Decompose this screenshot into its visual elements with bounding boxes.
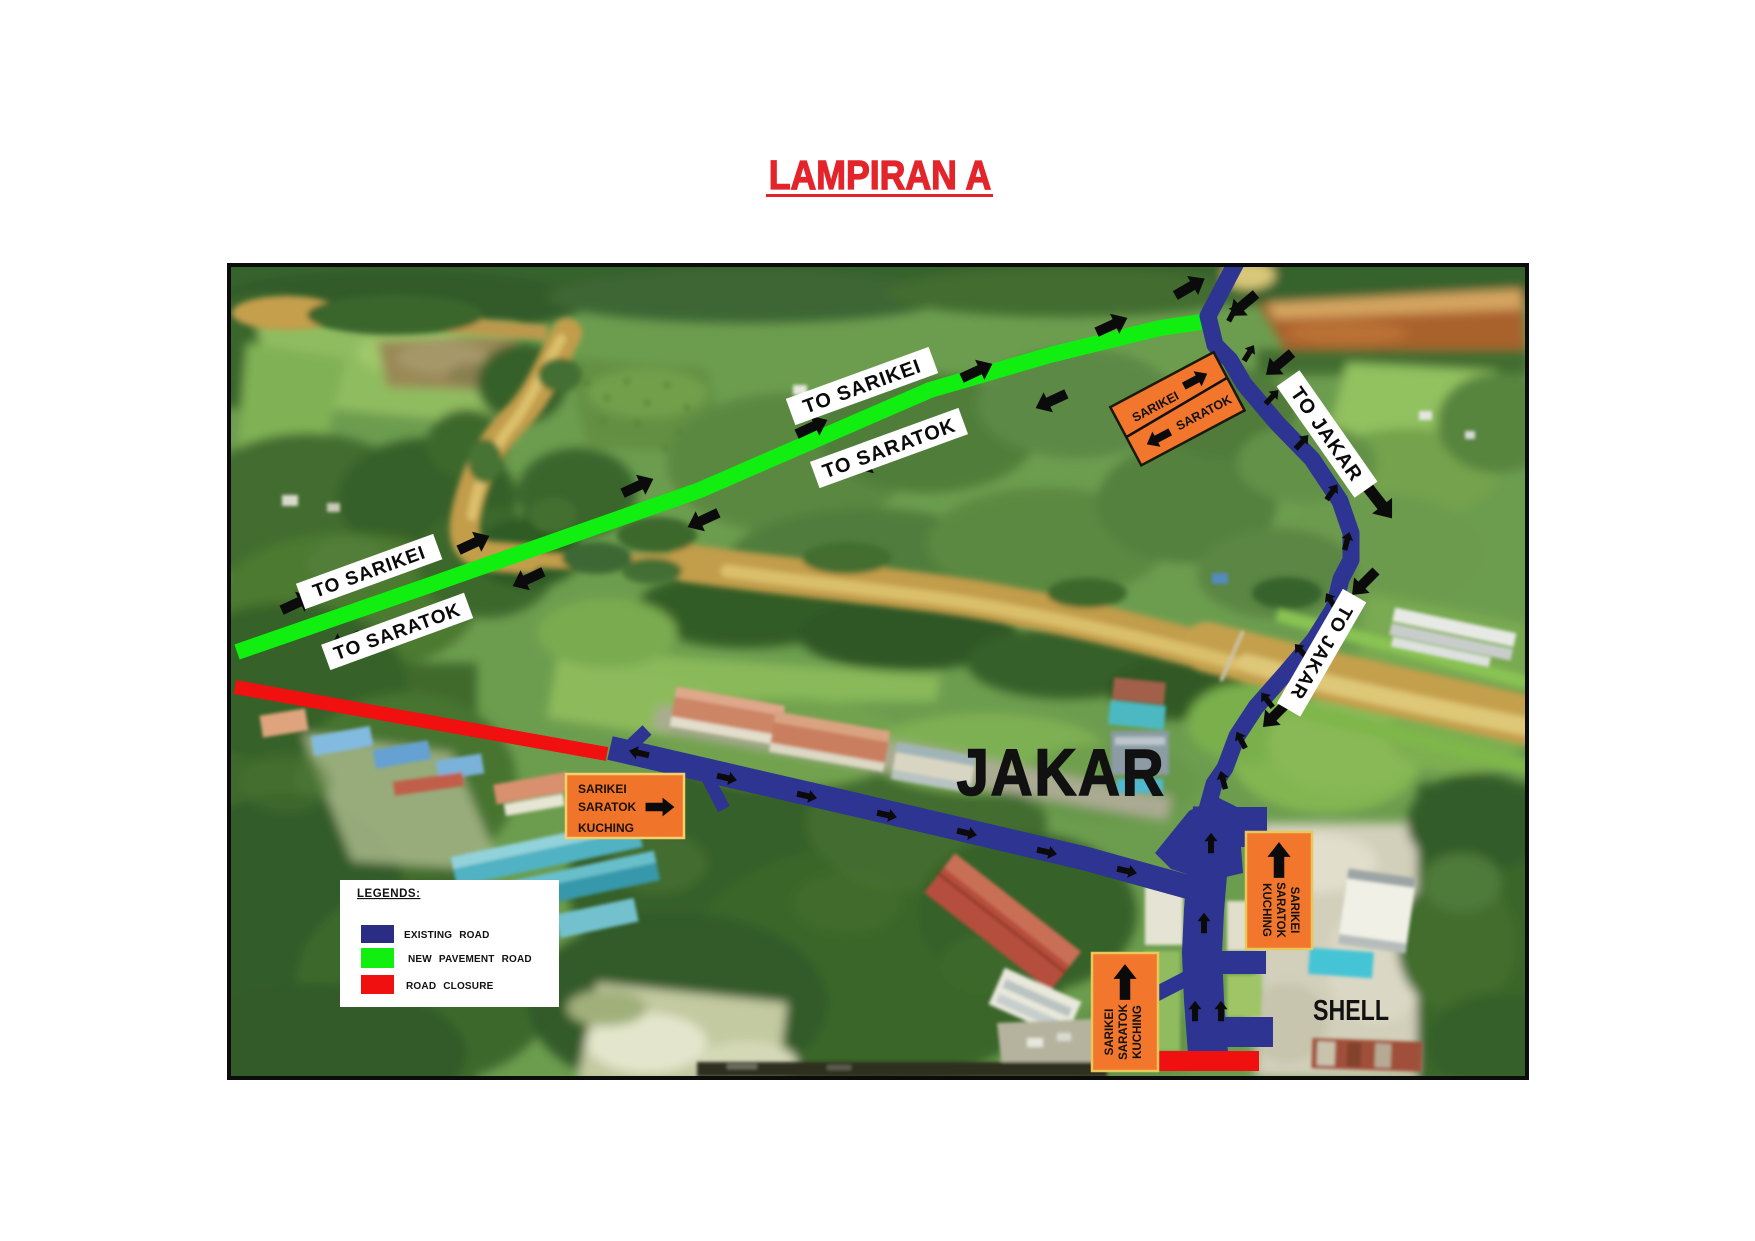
svg-text:SARIKEI: SARIKEI	[578, 782, 627, 796]
svg-text:KUCHING: KUCHING	[1260, 883, 1272, 937]
svg-text:SARIKEI: SARIKEI	[1104, 1009, 1116, 1056]
svg-text:SARATOK: SARATOK	[578, 800, 637, 814]
svg-text:JAKAR: JAKAR	[957, 737, 1166, 810]
svg-text:ROAD CLOSURE: ROAD CLOSURE	[406, 981, 494, 992]
svg-text:SARATOK: SARATOK	[1118, 1003, 1130, 1059]
svg-text:SARIKEI: SARIKEI	[1288, 887, 1300, 934]
svg-text:KUCHING: KUCHING	[1132, 1005, 1144, 1059]
svg-text:KUCHING: KUCHING	[578, 821, 634, 835]
svg-text:NEW PAVEMENT ROAD: NEW PAVEMENT ROAD	[408, 954, 532, 965]
svg-text:EXISTING ROAD: EXISTING ROAD	[404, 930, 490, 941]
svg-text:SARATOK: SARATOK	[1274, 882, 1286, 938]
svg-text:SHELL: SHELL	[1313, 993, 1389, 1026]
svg-text:LEGENDS:: LEGENDS:	[357, 888, 420, 900]
